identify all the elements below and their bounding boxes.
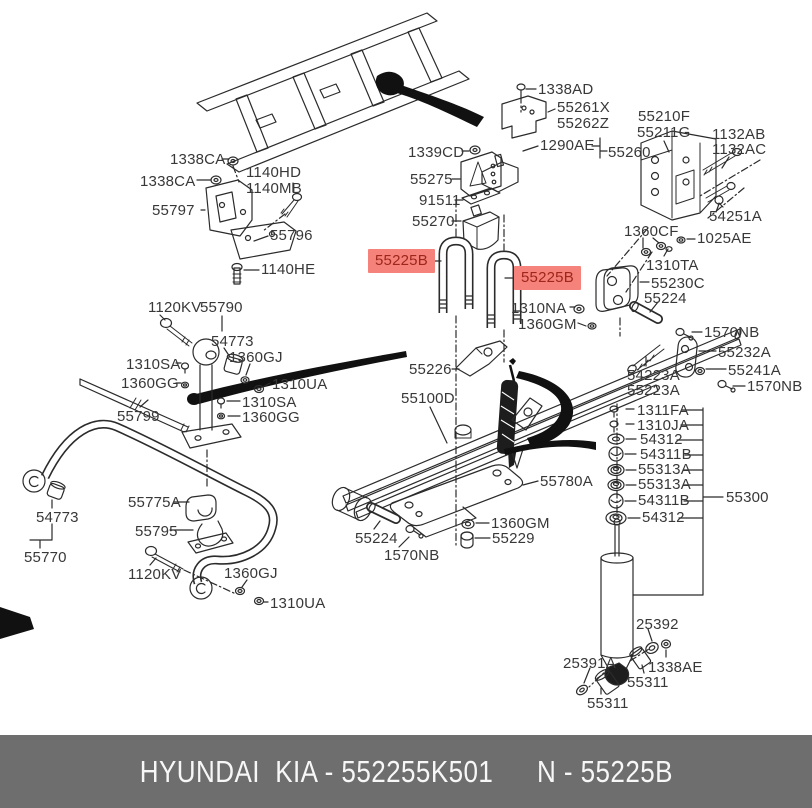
- part-label: 1570NB: [747, 378, 802, 395]
- part-label: 1570NB: [384, 547, 439, 564]
- part-label-highlighted: 55225B: [514, 266, 581, 290]
- part-label: 1360GM: [518, 316, 577, 333]
- part-label: 1120KV: [128, 566, 181, 583]
- part-label: 55780A: [540, 473, 593, 490]
- footer-brand-code: HYUNDAI KIA - 552255K501: [139, 754, 493, 790]
- part-label: 55260: [608, 144, 651, 161]
- part-label: 55270: [412, 213, 455, 230]
- part-label: 1310NA: [511, 300, 566, 317]
- part-label: 1132AC: [712, 141, 766, 158]
- part-label: 55313A: [638, 476, 691, 493]
- part-label: 55224: [644, 290, 687, 307]
- part-label: 1338CA: [170, 151, 225, 168]
- part-label: 1140MB: [246, 180, 302, 197]
- part-label: 1360GJ: [224, 565, 278, 582]
- part-label: 1360GG: [242, 409, 300, 426]
- part-label: 55100D: [401, 390, 455, 407]
- part-label-highlighted: 55225B: [368, 249, 435, 273]
- labels-layer: 1338CA1338CA1140HD1140MB55797557961140HE…: [0, 0, 812, 735]
- part-label: 55795: [135, 523, 178, 540]
- part-label: 1120KV: [148, 299, 201, 316]
- part-label: 55275: [410, 171, 453, 188]
- part-label: 1338CA: [140, 173, 195, 190]
- part-label: 55770: [24, 549, 67, 566]
- part-label: 55790: [200, 299, 243, 316]
- part-label: 1310UA: [270, 595, 325, 612]
- footer-bar: HYUNDAI KIA - 552255K501 N - 55225B: [0, 735, 812, 808]
- part-label: 91511: [419, 192, 461, 209]
- part-label: 1360GJ: [229, 349, 283, 366]
- part-label: 55311: [627, 674, 669, 691]
- part-label: 54312: [642, 509, 685, 526]
- parts-catalog-page: 1338CA1338CA1140HD1140MB55797557961140HE…: [0, 0, 812, 808]
- part-label: 1570NB: [704, 324, 759, 341]
- part-label: 1360GG: [121, 375, 179, 392]
- part-label: 1140HD: [246, 164, 301, 181]
- part-label: 55799: [117, 408, 160, 425]
- part-label: 1310UA: [272, 376, 327, 393]
- part-label: 1339CD: [408, 144, 464, 161]
- part-label: 1360CF: [624, 223, 679, 240]
- part-label: 55796: [270, 227, 313, 244]
- part-label: 55223A: [627, 382, 680, 399]
- part-label: 54311B: [638, 492, 690, 509]
- part-label: 55261X: [557, 99, 610, 116]
- part-label: 55311: [587, 695, 629, 712]
- part-label: 25392: [636, 616, 679, 633]
- part-label: 55211G: [637, 124, 690, 141]
- part-label: 55229: [492, 530, 535, 547]
- footer-part-number: N - 55225B: [537, 754, 673, 790]
- part-label: 54773: [36, 509, 79, 526]
- part-label: 25391A: [563, 655, 616, 672]
- part-label: 1290AE: [540, 137, 595, 154]
- part-label: 55775A: [128, 494, 181, 511]
- part-label: 1338AD: [538, 81, 593, 98]
- part-label: 1025AE: [697, 230, 752, 247]
- part-label: 1310SA: [126, 356, 181, 373]
- part-label: 55262Z: [557, 115, 609, 132]
- part-label: 55232A: [718, 344, 771, 361]
- part-label: 55797: [152, 202, 195, 219]
- part-label: 55210F: [638, 108, 690, 125]
- part-label: 1310TA: [646, 257, 699, 274]
- part-label: 54251A: [709, 208, 762, 225]
- part-label: 55300: [726, 489, 769, 506]
- part-label: 55241A: [728, 362, 781, 379]
- footer-text: HYUNDAI KIA - 552255K501 N - 55225B: [139, 754, 672, 790]
- part-label: 54773: [211, 333, 254, 350]
- part-label: 55224: [355, 530, 398, 547]
- part-label: 1140HE: [261, 261, 315, 278]
- part-label: 55226: [409, 361, 452, 378]
